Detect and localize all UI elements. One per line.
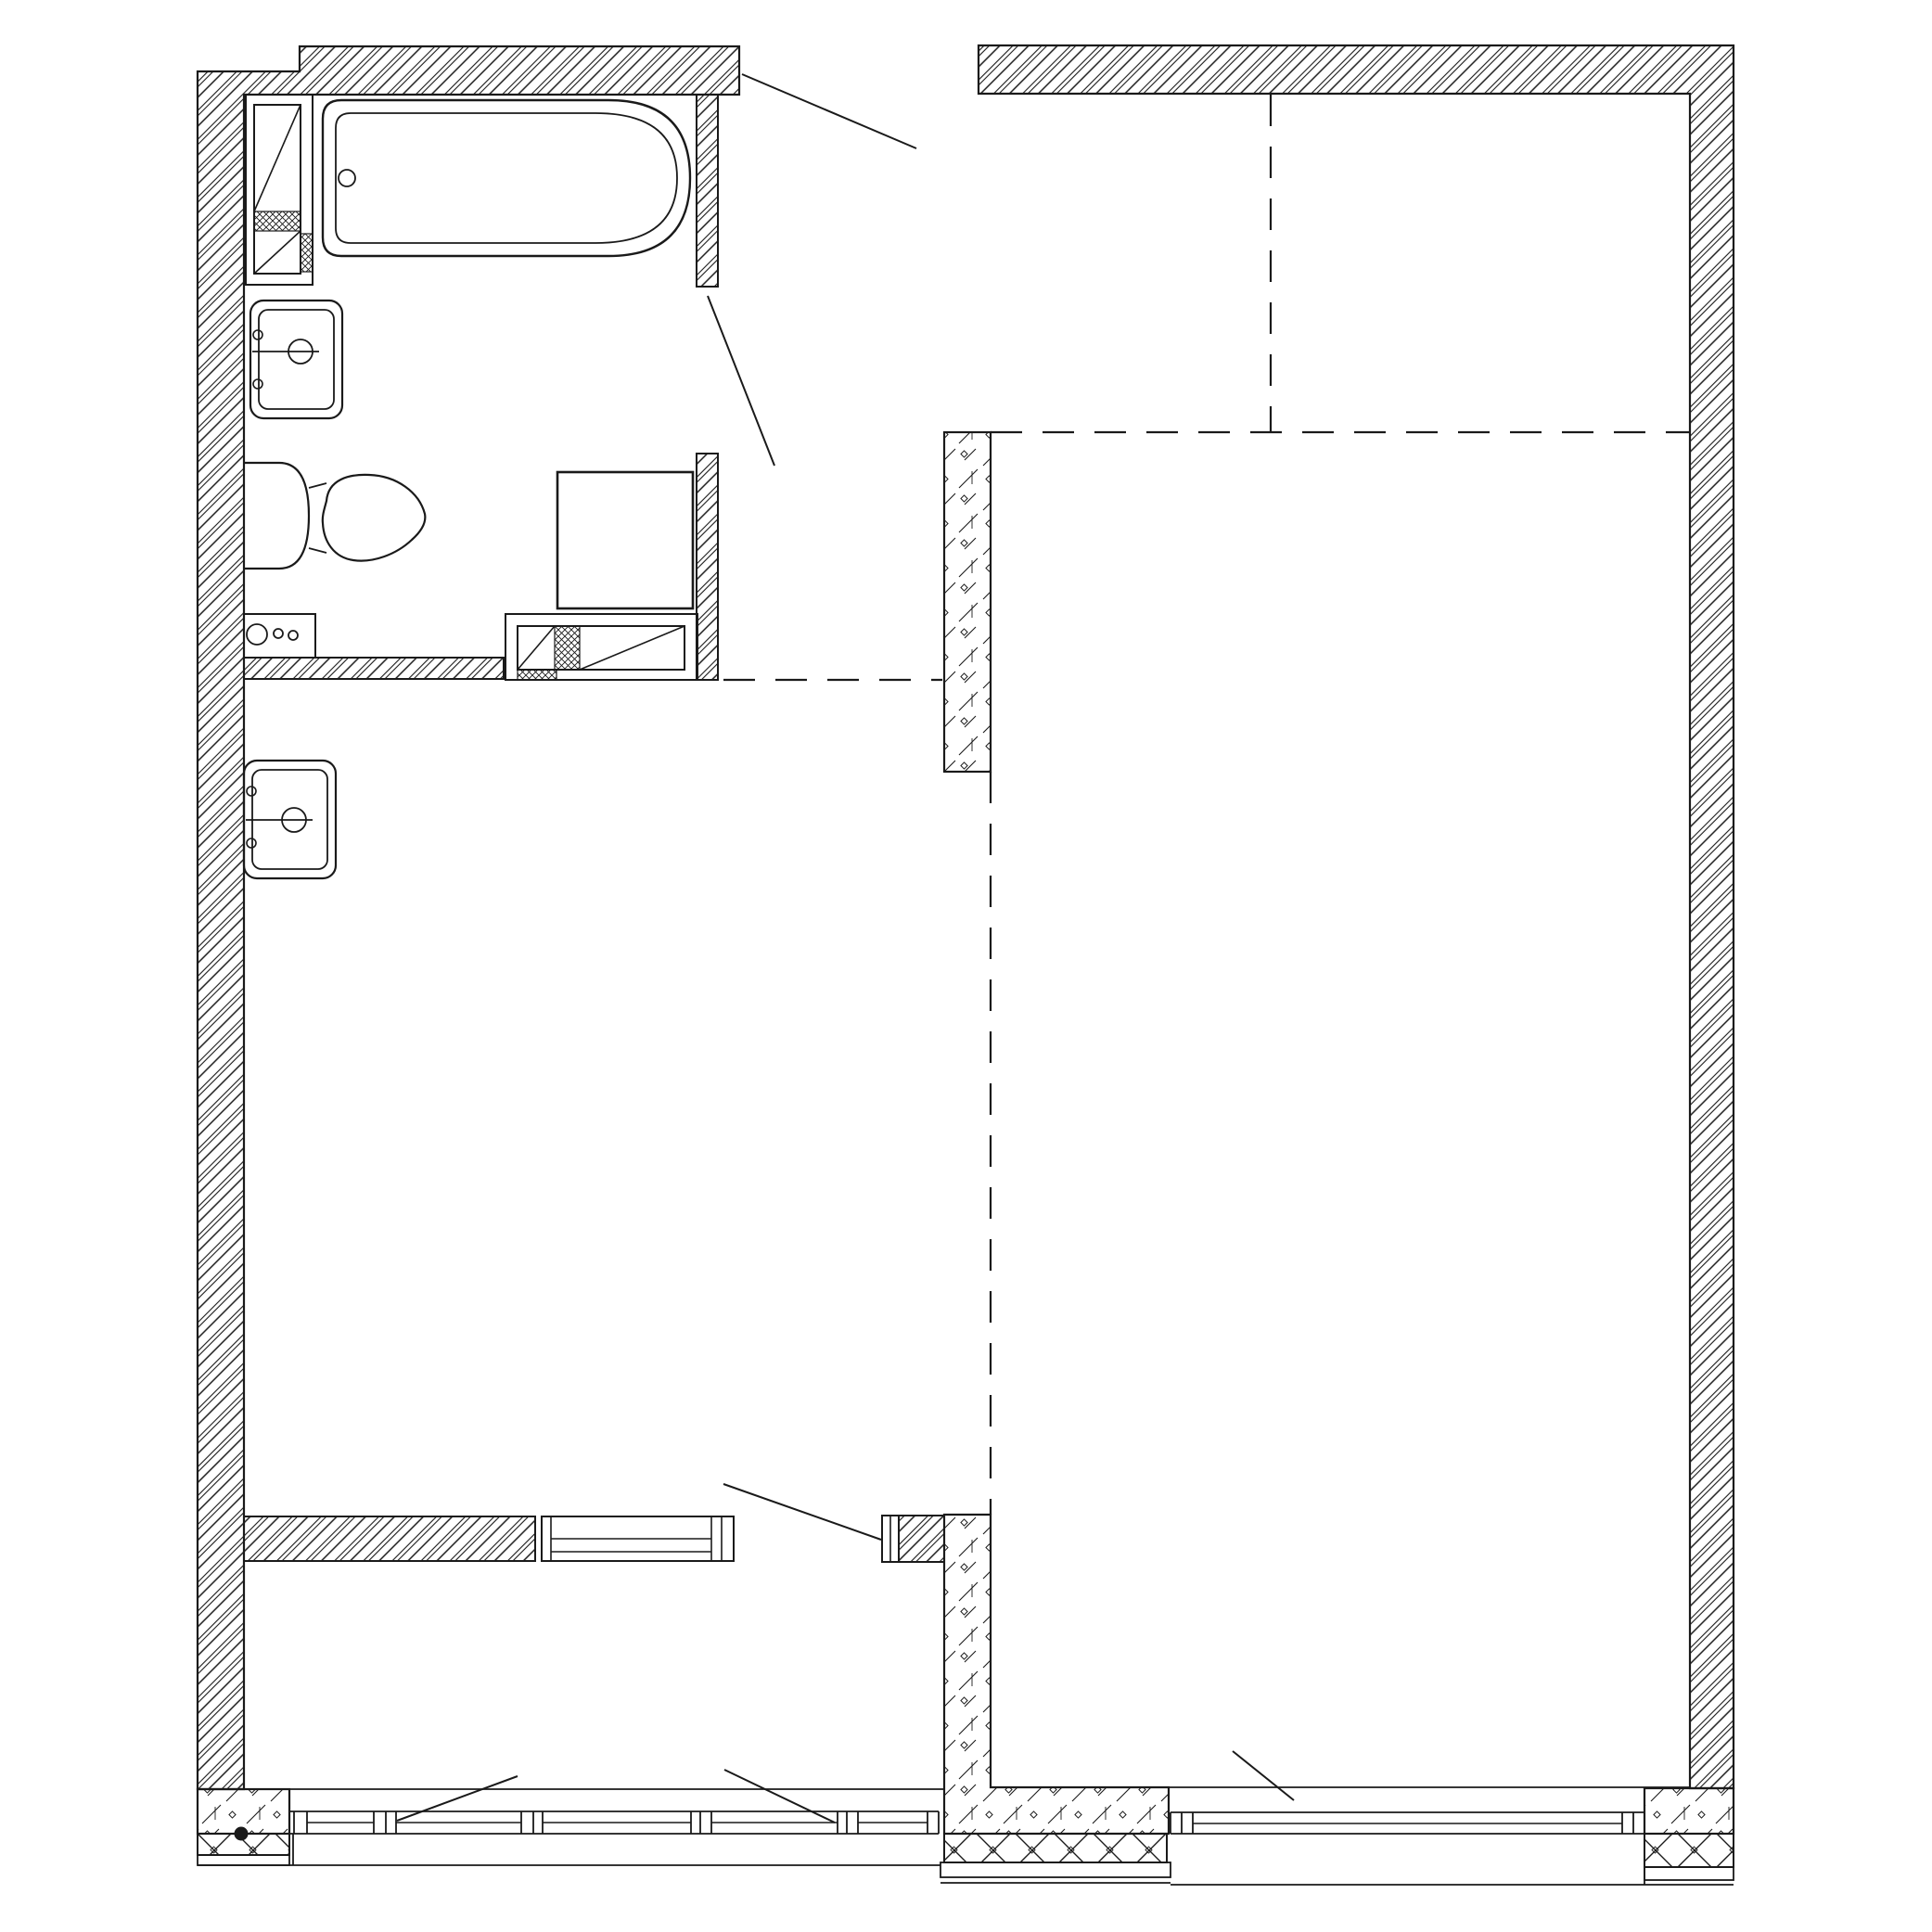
- window-left-band: [289, 1811, 939, 1834]
- meter-box: [244, 614, 315, 658]
- glazed-partition: [542, 1516, 734, 1561]
- left-window-sash-stroke: [397, 1776, 518, 1821]
- column-upper: [944, 432, 991, 772]
- sill-strip-left-corner: [198, 1855, 289, 1865]
- vent-shaft-kitchen: [505, 614, 697, 680]
- floor-plan-svg: [0, 0, 1932, 1932]
- corner-block-right: [1644, 1788, 1734, 1834]
- bathroom-sink: [250, 301, 342, 418]
- insulation-block-right: [1644, 1834, 1734, 1867]
- outer-wall-top-right-and-right: [979, 45, 1734, 1788]
- door-pier: [899, 1516, 944, 1562]
- bathroom-pier-upper: [697, 95, 718, 287]
- drawing-sheet: [0, 0, 1932, 1932]
- washing-machine: [557, 472, 693, 608]
- right-window-sash-stroke: [1233, 1751, 1294, 1800]
- survey-dot: [235, 1827, 248, 1840]
- window-right-band: [1171, 1812, 1644, 1834]
- bathroom-door-swing: [708, 296, 774, 466]
- corner-block-left: [198, 1789, 289, 1834]
- door-frame-cell: [882, 1516, 899, 1562]
- kitchen-sink: [244, 761, 336, 878]
- balcony-sill: [940, 1862, 1171, 1883]
- entrance-door-swing: [742, 74, 916, 148]
- toilet: [244, 463, 425, 569]
- bathroom-bottom-wall: [244, 658, 504, 679]
- column-lower-L: [944, 1515, 1169, 1834]
- sill-strip-right-corner: [1644, 1867, 1734, 1880]
- partition-wall-kitchen: [244, 1516, 535, 1561]
- bathtub: [323, 100, 690, 256]
- insulation-block-balcony: [944, 1834, 1167, 1862]
- vent-shaft-bathroom: [246, 95, 313, 285]
- bathroom-pier-lower: [697, 454, 718, 680]
- balcony-door-swing: [724, 1770, 835, 1823]
- room-door-swing: [723, 1484, 881, 1540]
